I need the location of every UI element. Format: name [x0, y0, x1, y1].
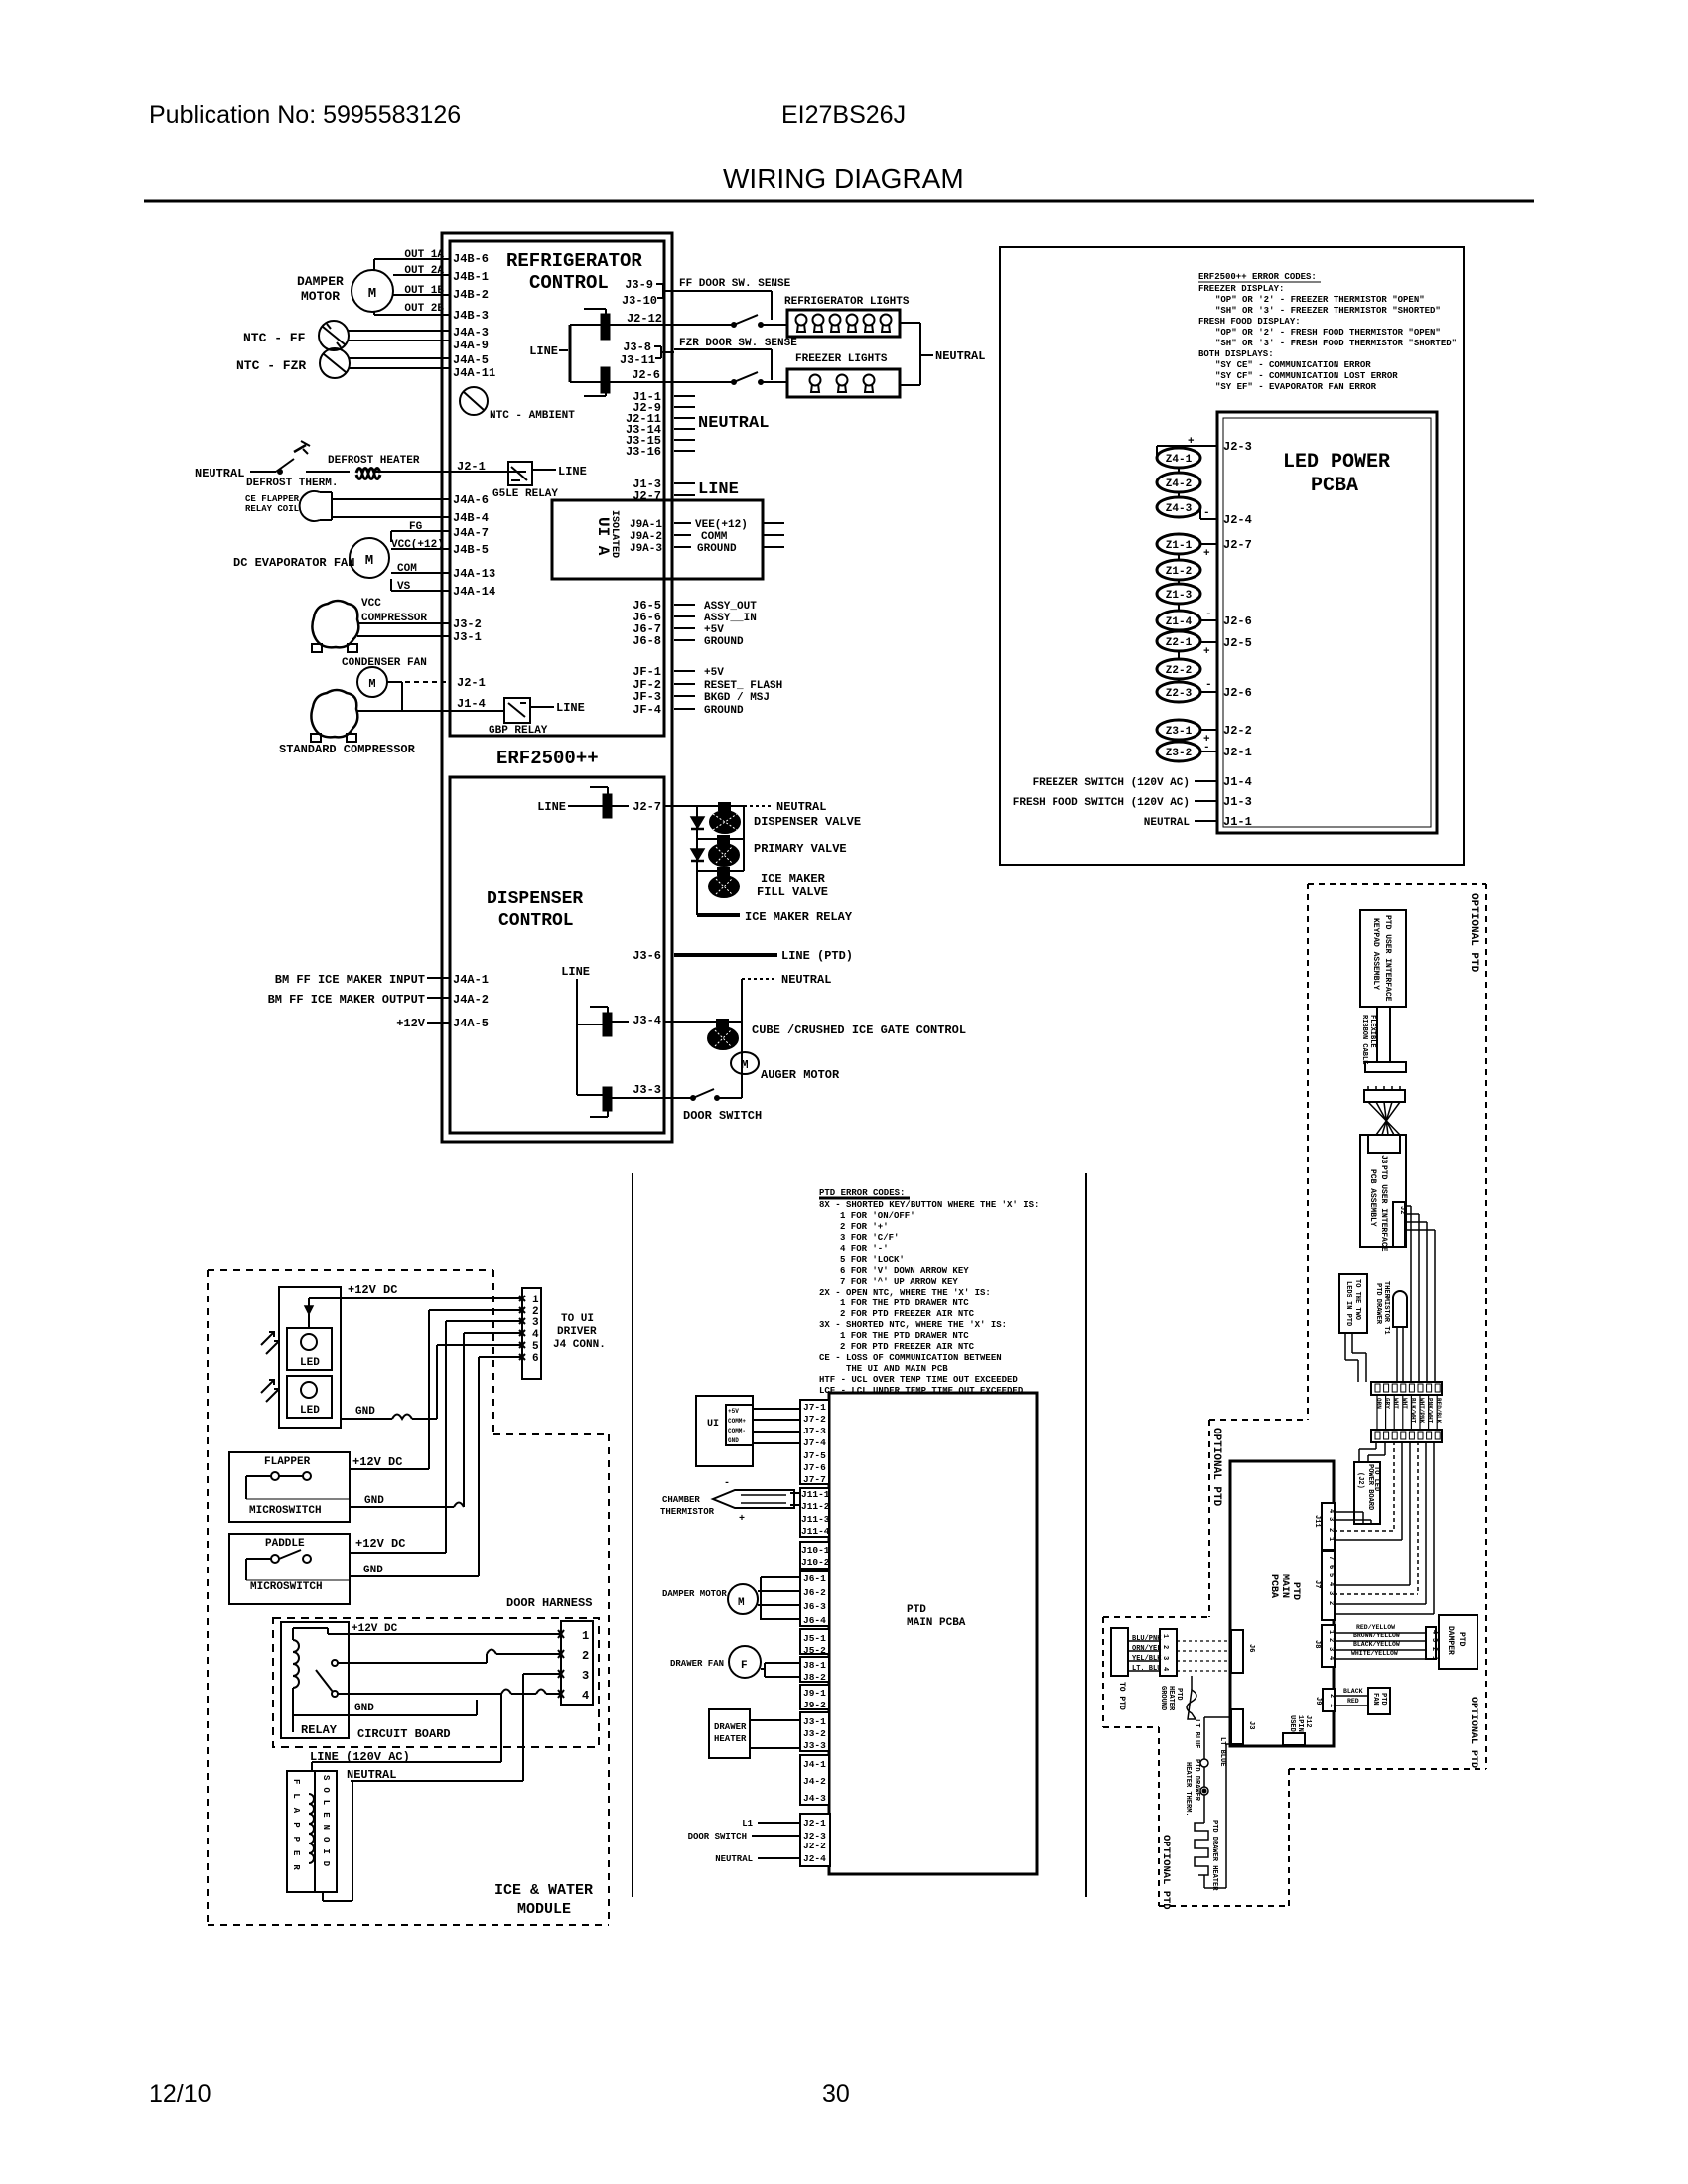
svg-text:J2-6: J2-6: [1223, 686, 1252, 700]
svg-text:DISPENSER: DISPENSER: [487, 889, 583, 909]
svg-text:LED: LED: [300, 1405, 320, 1417]
svg-text:M: M: [738, 1597, 745, 1609]
svg-text:30: 30: [822, 2080, 850, 2108]
svg-text:PCB ASSEMBLY: PCB ASSEMBLY: [1368, 1169, 1377, 1227]
svg-text:DOOR SWITCH: DOOR SWITCH: [683, 1109, 762, 1123]
svg-text:J2-6: J2-6: [632, 368, 660, 382]
svg-text:J4-3: J4-3: [803, 1793, 826, 1804]
svg-text:-: -: [1203, 507, 1210, 519]
svg-text:CHAMBER: CHAMBER: [662, 1495, 700, 1505]
svg-text:PTD DRAWER: PTD DRAWER: [1193, 1759, 1200, 1802]
svg-text:4: 4: [1161, 1667, 1169, 1671]
svg-text:MAIN: MAIN: [1279, 1574, 1290, 1598]
svg-text:VCC: VCC: [361, 598, 381, 610]
svg-text:FREEZER SWITCH (120V AC): FREEZER SWITCH (120V AC): [1033, 777, 1190, 789]
svg-text:GROUND: GROUND: [704, 636, 744, 648]
svg-text:HEATER THERM.: HEATER THERM.: [1184, 1762, 1192, 1817]
svg-text:RELAY COIL: RELAY COIL: [245, 504, 299, 514]
svg-text:4: 4: [1327, 1582, 1335, 1586]
svg-text:JF-4: JF-4: [633, 703, 661, 717]
svg-text:J7: J7: [1313, 1580, 1321, 1588]
svg-text:+12V DC: +12V DC: [348, 1283, 397, 1297]
svg-text:Z2-3: Z2-3: [1166, 688, 1193, 700]
svg-text:DEFROST THERM.: DEFROST THERM.: [246, 478, 338, 489]
svg-text:J4 CONN.: J4 CONN.: [553, 1339, 606, 1351]
svg-text:J2-4: J2-4: [1223, 513, 1252, 527]
svg-text:CONTROL: CONTROL: [498, 911, 574, 931]
svg-text:+: +: [1203, 646, 1210, 658]
svg-text:"SH" OR '3' - FREEZER THERMIST: "SH" OR '3' - FREEZER THERMISTOR "SHORTE…: [1215, 306, 1441, 316]
svg-text:Z4-1: Z4-1: [1166, 454, 1193, 466]
svg-text:J8: J8: [1313, 1640, 1321, 1648]
svg-text:J2-1: J2-1: [803, 1818, 826, 1829]
svg-text:J3-2: J3-2: [803, 1728, 826, 1739]
svg-text:J3-4: J3-4: [633, 1014, 661, 1027]
svg-text:J2-12: J2-12: [627, 312, 662, 326]
svg-text:12/10: 12/10: [149, 2080, 211, 2108]
svg-text:5: 5: [1327, 1573, 1335, 1577]
svg-text:WHITE/YELLOW: WHITE/YELLOW: [1351, 1650, 1398, 1657]
svg-text:COMM+: COMM+: [728, 1418, 746, 1425]
svg-text:J3-11: J3-11: [620, 353, 655, 367]
svg-text:DAMPER: DAMPER: [1446, 1626, 1455, 1655]
svg-text:J4A-5: J4A-5: [453, 1017, 489, 1030]
svg-text:J11-4: J11-4: [801, 1526, 830, 1537]
svg-text:DAMPER: DAMPER: [297, 274, 344, 289]
svg-text:PTD: PTD: [1379, 1693, 1387, 1706]
svg-text:+: +: [1203, 548, 1210, 560]
svg-text:J2-1: J2-1: [457, 460, 486, 474]
svg-text:BLK/WHT: BLK/WHT: [1409, 1398, 1416, 1424]
svg-text:REFRIGERATOR LIGHTS: REFRIGERATOR LIGHTS: [784, 296, 910, 308]
svg-text:VS: VS: [397, 581, 411, 593]
svg-text:3: 3: [582, 1669, 589, 1683]
svg-text:GBP RELAY: GBP RELAY: [489, 725, 548, 737]
svg-text:NEUTRAL: NEUTRAL: [781, 973, 831, 987]
svg-text:J3-16: J3-16: [626, 445, 661, 459]
svg-text:LED POWER: LED POWER: [1283, 451, 1390, 474]
svg-text:4: 4: [1327, 1656, 1335, 1660]
svg-text:LINE: LINE: [561, 965, 590, 979]
svg-text:RED/BLK: RED/BLK: [1435, 1398, 1442, 1424]
svg-text:J11-3: J11-3: [801, 1514, 830, 1525]
svg-text:MOTOR: MOTOR: [301, 289, 340, 304]
svg-text:DRAWER FAN: DRAWER FAN: [670, 1659, 724, 1669]
svg-text:J11-1: J11-1: [801, 1489, 830, 1500]
svg-text:7 FOR '^' UP ARROW KEY: 7 FOR '^' UP ARROW KEY: [840, 1277, 958, 1287]
svg-text:LINE: LINE: [698, 480, 739, 499]
svg-text:NEUTRAL: NEUTRAL: [195, 467, 244, 480]
svg-text:PNK/WHT: PNK/WHT: [1427, 1398, 1434, 1424]
svg-text:PTD DRAWER HEATER: PTD DRAWER HEATER: [1210, 1820, 1218, 1891]
svg-text:GROUND: GROUND: [1159, 1686, 1167, 1710]
svg-text:ICE MAKER: ICE MAKER: [761, 872, 826, 886]
svg-text:7: 7: [1327, 1556, 1335, 1560]
svg-text:WHT: WHT: [1401, 1398, 1408, 1409]
svg-text:ICE & WATER: ICE & WATER: [494, 1882, 593, 1899]
svg-text:F: F: [741, 1660, 748, 1672]
svg-text:J2-6: J2-6: [1223, 614, 1252, 628]
svg-text:USED: USED: [1288, 1715, 1296, 1732]
svg-text:ORN: ORN: [1375, 1398, 1382, 1409]
svg-text:J11: J11: [1313, 1515, 1321, 1528]
svg-text:J9A-3: J9A-3: [630, 543, 662, 555]
svg-text:J3: J3: [1247, 1721, 1255, 1729]
svg-text:J7-6: J7-6: [803, 1462, 826, 1473]
svg-text:CUBE /CRUSHED ICE GATE CONTROL: CUBE /CRUSHED ICE GATE CONTROL: [752, 1024, 966, 1037]
svg-text:Z1-3: Z1-3: [1166, 590, 1193, 602]
svg-text:DOOR SWITCH: DOOR SWITCH: [688, 1832, 747, 1842]
svg-text:J3-1: J3-1: [803, 1716, 826, 1727]
svg-text:"SY CF" - COMMUNICATION LOST E: "SY CF" - COMMUNICATION LOST ERROR: [1215, 371, 1398, 381]
svg-text:THERMISTOR T1: THERMISTOR T1: [1382, 1281, 1390, 1335]
svg-text:J4A-11: J4A-11: [453, 366, 495, 380]
svg-text:Z2-1: Z2-1: [1166, 637, 1193, 649]
svg-text:J6-3: J6-3: [803, 1601, 826, 1612]
svg-text:2: 2: [582, 1649, 589, 1663]
svg-text:-: -: [1203, 742, 1210, 753]
svg-text:PTD USER INTERFACE: PTD USER INTERFACE: [1379, 1165, 1388, 1252]
svg-text:RELAY: RELAY: [301, 1723, 338, 1737]
svg-text:GND: GND: [363, 1565, 383, 1576]
svg-text:+12V DC: +12V DC: [355, 1537, 405, 1551]
svg-text:2: 2: [1328, 1694, 1336, 1698]
svg-text:J4-1: J4-1: [803, 1759, 826, 1770]
svg-text:J1-4: J1-4: [1223, 775, 1252, 789]
svg-text:2X - OPEN NTC, WHERE THE 'X' I: 2X - OPEN NTC, WHERE THE 'X' IS:: [819, 1288, 991, 1297]
svg-text:RIBBON CABLE: RIBBON CABLE: [1360, 1015, 1368, 1064]
svg-text:1PIN: 1PIN: [1296, 1715, 1304, 1732]
svg-text:PTD: PTD: [907, 1604, 926, 1616]
svg-text:3: 3: [1161, 1656, 1169, 1660]
svg-text:+12V DC: +12V DC: [352, 1455, 402, 1469]
svg-text:OPTIONAL PTD: OPTIONAL PTD: [1210, 1428, 1222, 1507]
svg-text:J4A-6: J4A-6: [453, 493, 489, 507]
svg-text:1: 1: [1327, 1537, 1335, 1541]
svg-text:2: 2: [1327, 1601, 1335, 1605]
svg-text:BM FF ICE MAKER OUTPUT: BM FF ICE MAKER OUTPUT: [268, 993, 425, 1007]
svg-text:"SY CE" - COMMUNICATION ERROR: "SY CE" - COMMUNICATION ERROR: [1215, 360, 1371, 370]
svg-text:ERF2500++ ERROR CODES:: ERF2500++ ERROR CODES:: [1198, 272, 1317, 282]
svg-text:+5V: +5V: [704, 667, 724, 679]
svg-text:3: 3: [1327, 1591, 1335, 1595]
svg-text:LINE: LINE: [537, 800, 566, 814]
svg-text:J4A-13: J4A-13: [453, 567, 495, 581]
svg-text:COMM: COMM: [701, 531, 728, 543]
svg-text:NEUTRAL: NEUTRAL: [698, 414, 769, 433]
svg-text:ERF2500++: ERF2500++: [496, 748, 599, 769]
svg-text:3X - SHORTED NTC, WHERE THE 'X: 3X - SHORTED NTC, WHERE THE 'X' IS:: [819, 1320, 1007, 1330]
svg-text:6: 6: [1327, 1565, 1335, 1569]
svg-text:J7-5: J7-5: [803, 1450, 826, 1461]
svg-text:8X - SHORTED KEY/BUTTON WHERE: 8X - SHORTED KEY/BUTTON WHERE THE 'X' IS…: [819, 1200, 1039, 1210]
svg-text:J9: J9: [1314, 1697, 1322, 1705]
svg-text:OPTIONAL PTD: OPTIONAL PTD: [1160, 1835, 1172, 1910]
svg-text:OPTIONAL PTD: OPTIONAL PTD: [1468, 1697, 1478, 1768]
svg-text:J4A-3: J4A-3: [453, 326, 489, 340]
svg-text:PTD: PTD: [1175, 1688, 1183, 1701]
svg-text:J7-2: J7-2: [803, 1414, 826, 1425]
svg-text:J2-7: J2-7: [633, 800, 661, 814]
svg-text:STANDARD COMPRESSOR: STANDARD COMPRESSOR: [279, 743, 416, 756]
svg-text:TO UI: TO UI: [561, 1313, 594, 1325]
svg-text:"OP" OR '2' - FREEZER THERMIST: "OP" OR '2' - FREEZER THERMISTOR "OPEN": [1215, 295, 1425, 305]
svg-text:J3: J3: [1379, 1155, 1388, 1164]
svg-text:J3-10: J3-10: [622, 294, 657, 308]
svg-text:6: 6: [532, 1353, 539, 1365]
svg-text:NEUTRAL: NEUTRAL: [935, 349, 985, 363]
svg-text:J7-7: J7-7: [803, 1474, 826, 1485]
svg-text:J7-3: J7-3: [803, 1426, 826, 1436]
svg-text:Z4-2: Z4-2: [1166, 478, 1192, 490]
svg-text:OUT 2A: OUT 2A: [404, 265, 444, 277]
svg-text:FRESH FOOD SWITCH (120V AC): FRESH FOOD SWITCH (120V AC): [1013, 797, 1190, 809]
svg-text:GROUND: GROUND: [697, 543, 737, 555]
svg-text:J4B-4: J4B-4: [453, 511, 489, 525]
svg-text:J3-3: J3-3: [803, 1740, 826, 1751]
svg-text:J4B-2: J4B-2: [453, 288, 489, 302]
svg-text:CE - LOSS OF COMMUNICATION BET: CE - LOSS OF COMMUNICATION BETWEEN: [819, 1353, 1002, 1363]
svg-text:"SY EF" - EVAPORATOR FAN ERROR: "SY EF" - EVAPORATOR FAN ERROR: [1215, 382, 1377, 392]
svg-text:NEUTRAL: NEUTRAL: [776, 800, 826, 814]
svg-text:J8-2: J8-2: [803, 1672, 826, 1683]
svg-text:J4A-1: J4A-1: [453, 973, 489, 987]
svg-text:M: M: [368, 286, 376, 302]
svg-text:-: -: [1205, 679, 1212, 691]
svg-text:FLAPPER: FLAPPER: [264, 1456, 311, 1468]
svg-text:J3-6: J3-6: [633, 949, 661, 963]
svg-text:PTD USER INTERFACE: PTD USER INTERFACE: [1383, 915, 1392, 1002]
svg-text:THERMISTOR: THERMISTOR: [660, 1507, 715, 1517]
svg-text:J3-3: J3-3: [633, 1083, 661, 1097]
svg-text:FG: FG: [409, 521, 423, 533]
svg-text:M: M: [741, 1058, 748, 1072]
svg-text:3: 3: [532, 1317, 539, 1329]
svg-text:Z2-2: Z2-2: [1166, 665, 1192, 677]
svg-text:ORN/YEL: ORN/YEL: [1132, 1645, 1161, 1653]
svg-text:BLACK/YELLOW: BLACK/YELLOW: [1353, 1641, 1400, 1648]
svg-text:J10-2: J10-2: [801, 1557, 830, 1568]
svg-text:J10-1: J10-1: [801, 1545, 830, 1556]
svg-text:PCBA: PCBA: [1268, 1574, 1279, 1598]
svg-text:J2-1: J2-1: [457, 676, 486, 690]
svg-text:J4A-14: J4A-14: [453, 585, 495, 599]
svg-text:FLAPPER: FLAPPER: [291, 1779, 301, 1879]
svg-text:GND: GND: [364, 1495, 384, 1507]
svg-text:J7-1: J7-1: [803, 1402, 826, 1413]
svg-text:J2-3: J2-3: [1223, 440, 1252, 454]
svg-text:J4A-5: J4A-5: [453, 353, 489, 367]
svg-text:1 FOR THE PTD DRAWER NTC: 1 FOR THE PTD DRAWER NTC: [840, 1331, 969, 1341]
svg-text:J8-1: J8-1: [803, 1660, 826, 1671]
svg-text:JF-1: JF-1: [633, 665, 661, 679]
svg-text:J3-1: J3-1: [453, 630, 482, 644]
svg-text:4: 4: [582, 1689, 589, 1703]
svg-text:PTD: PTD: [1457, 1632, 1466, 1647]
svg-text:WIRING DIAGRAM: WIRING DIAGRAM: [723, 163, 964, 194]
svg-text:1 FOR 'ON/OFF': 1 FOR 'ON/OFF': [840, 1211, 915, 1221]
svg-text:5: 5: [532, 1341, 539, 1353]
svg-text:FREEZER LIGHTS: FREEZER LIGHTS: [795, 353, 888, 365]
svg-text:NTC - FF: NTC - FF: [243, 331, 306, 345]
svg-text:"SH" OR '3' - FRESH FOOD THERM: "SH" OR '3' - FRESH FOOD THERMISTOR "SHO…: [1215, 339, 1457, 348]
svg-text:JF-3: JF-3: [633, 690, 661, 704]
svg-text:J9-1: J9-1: [803, 1688, 826, 1699]
svg-text:BLU/PNK: BLU/PNK: [1132, 1635, 1162, 1643]
svg-text:LINE: LINE: [558, 465, 587, 478]
svg-text:EI27BS26J: EI27BS26J: [781, 101, 906, 129]
svg-text:2 FOR '+': 2 FOR '+': [840, 1222, 889, 1232]
svg-text:Z3-2: Z3-2: [1166, 748, 1192, 759]
svg-text:3: 3: [1327, 1517, 1335, 1521]
svg-text:1: 1: [1327, 1630, 1335, 1634]
svg-text:COMM-: COMM-: [728, 1428, 746, 1434]
svg-text:J6-1: J6-1: [803, 1573, 826, 1584]
svg-text:FLEXIBLE: FLEXIBLE: [1368, 1015, 1376, 1048]
svg-text:DOOR HARNESS: DOOR HARNESS: [506, 1596, 592, 1610]
svg-text:2 FOR PTD FREEZER AIR NTC: 2 FOR PTD FREEZER AIR NTC: [840, 1309, 975, 1319]
svg-text:HEATER: HEATER: [714, 1734, 747, 1744]
svg-text:FILL VALVE: FILL VALVE: [757, 886, 828, 899]
svg-text:BLACK: BLACK: [1343, 1688, 1363, 1695]
svg-text:MICROSWITCH: MICROSWITCH: [250, 1581, 323, 1593]
svg-text:NTC - AMBIENT: NTC - AMBIENT: [490, 410, 575, 422]
svg-text:LINE (PTD): LINE (PTD): [781, 949, 853, 963]
svg-text:VEE(+12): VEE(+12): [695, 519, 748, 531]
svg-text:ISOLATED: ISOLATED: [609, 510, 620, 558]
svg-text:RED/YELLOW: RED/YELLOW: [1356, 1624, 1395, 1631]
svg-text:DAMPER MOTOR: DAMPER MOTOR: [662, 1589, 727, 1599]
svg-text:J3-2: J3-2: [453, 617, 482, 631]
svg-text:KEYPAD ASSEMBLY: KEYPAD ASSEMBLY: [1371, 918, 1380, 990]
svg-text:J4B-3: J4B-3: [453, 309, 489, 323]
svg-text:YEL/BLK: YEL/BLK: [1132, 1655, 1162, 1663]
svg-text:OUT 1B: OUT 1B: [404, 285, 444, 297]
svg-text:CONTROL: CONTROL: [529, 272, 609, 294]
svg-text:LINE: LINE: [556, 701, 585, 715]
svg-text:OUT 2B: OUT 2B: [404, 303, 444, 315]
svg-text:OPTIONAL PTD: OPTIONAL PTD: [1468, 893, 1479, 973]
svg-text:TO THE TWO: TO THE TWO: [1353, 1279, 1361, 1320]
svg-text:J9A-2: J9A-2: [630, 531, 662, 543]
svg-text:4 FOR '-': 4 FOR '-': [840, 1244, 889, 1254]
svg-text:AUGER MOTOR: AUGER MOTOR: [761, 1068, 840, 1082]
svg-text:LINE: LINE: [529, 344, 558, 358]
svg-text:3 FOR 'C/F': 3 FOR 'C/F': [840, 1233, 899, 1243]
svg-text:WHT: WHT: [1392, 1398, 1399, 1409]
svg-text:PCBA: PCBA: [1311, 475, 1358, 497]
svg-text:THE UI AND MAIN PCB: THE UI AND MAIN PCB: [846, 1364, 948, 1374]
svg-text:GND: GND: [354, 1703, 374, 1714]
svg-text:J4A-7: J4A-7: [453, 526, 489, 540]
svg-text:CONDENSER FAN: CONDENSER FAN: [342, 657, 427, 669]
svg-text:1: 1: [582, 1629, 589, 1643]
svg-text:J6-4: J6-4: [803, 1615, 826, 1626]
svg-text:3: 3: [1430, 1638, 1438, 1642]
svg-text:1: 1: [1328, 1704, 1336, 1707]
svg-text:4: 4: [1430, 1630, 1438, 1634]
svg-text:(J2): (J2): [1356, 1472, 1364, 1489]
svg-text:LT. BLU: LT. BLU: [1132, 1665, 1161, 1673]
svg-text:2: 2: [1327, 1528, 1335, 1532]
svg-text:DEFROST HEATER: DEFROST HEATER: [328, 455, 420, 467]
svg-text:J5-1: J5-1: [803, 1633, 826, 1644]
svg-text:1: 1: [532, 1295, 539, 1306]
svg-text:OUT 1A: OUT 1A: [404, 249, 444, 261]
svg-text:GRY: GRY: [1384, 1398, 1391, 1409]
svg-text:LT BLUE: LT BLUE: [1193, 1719, 1200, 1748]
svg-text:CIRCUIT BOARD: CIRCUIT BOARD: [357, 1727, 451, 1741]
svg-text:4: 4: [532, 1329, 539, 1341]
svg-text:GROUND: GROUND: [704, 705, 744, 717]
svg-text:J1-3: J1-3: [1223, 795, 1252, 809]
svg-text:CE FLAPPER: CE FLAPPER: [245, 494, 300, 504]
svg-text:LEDS IN PTD: LEDS IN PTD: [1344, 1281, 1352, 1326]
svg-text:ICE MAKER RELAY: ICE MAKER RELAY: [745, 910, 853, 924]
svg-text:POWER BOARD: POWER BOARD: [1366, 1464, 1374, 1510]
svg-text:J2-2: J2-2: [803, 1841, 826, 1851]
svg-text:COM: COM: [397, 563, 417, 575]
svg-text:1: 1: [1430, 1656, 1438, 1660]
svg-text:M: M: [365, 553, 373, 569]
svg-text:J6-2: J6-2: [803, 1587, 826, 1598]
svg-text:J4B-6: J4B-6: [453, 252, 489, 266]
svg-text:Publication No: 5995583126: Publication No: 5995583126: [149, 101, 461, 129]
svg-text:J9A-1: J9A-1: [630, 519, 662, 531]
svg-text:MICROSWITCH: MICROSWITCH: [249, 1505, 322, 1517]
svg-text:-: -: [1205, 609, 1212, 620]
svg-text:DISPENSER VALVE: DISPENSER VALVE: [754, 815, 861, 829]
svg-text:DC EVAPORATOR FAN: DC EVAPORATOR FAN: [233, 556, 354, 570]
svg-text:LT BLUE: LT BLUE: [1218, 1737, 1226, 1766]
svg-text:M: M: [368, 677, 375, 691]
svg-text:J6-8: J6-8: [633, 634, 661, 648]
svg-text:J5-2: J5-2: [803, 1645, 826, 1656]
svg-text:J4A-2: J4A-2: [453, 993, 489, 1007]
svg-text:NEUTRAL: NEUTRAL: [347, 1768, 396, 1782]
svg-text:BOTH DISPLAYS:: BOTH DISPLAYS:: [1198, 349, 1274, 359]
svg-text:MODULE: MODULE: [517, 1901, 571, 1918]
svg-text:J11-2: J11-2: [801, 1501, 830, 1512]
svg-text:Z1-4: Z1-4: [1166, 616, 1193, 628]
svg-text:J12: J12: [1304, 1715, 1312, 1728]
svg-text:FZR DOOR SW. SENSE: FZR DOOR SW. SENSE: [679, 338, 797, 349]
svg-text:FAN: FAN: [1371, 1693, 1379, 1706]
svg-text:FREEZER DISPLAY:: FREEZER DISPLAY:: [1198, 284, 1284, 294]
svg-text:6 FOR 'V' DOWN ARROW KEY: 6 FOR 'V' DOWN ARROW KEY: [840, 1266, 969, 1276]
svg-text:J4A-9: J4A-9: [453, 339, 489, 352]
svg-text:2: 2: [1430, 1647, 1438, 1651]
svg-text:WHT/PNK: WHT/PNK: [1418, 1398, 1425, 1424]
svg-text:J2-1: J2-1: [1223, 746, 1252, 759]
svg-text:G5LE RELAY: G5LE RELAY: [492, 488, 558, 500]
svg-text:UI: UI: [707, 1419, 719, 1430]
svg-text:RED: RED: [1347, 1698, 1359, 1705]
svg-text:NEUTRAL: NEUTRAL: [715, 1854, 753, 1864]
svg-text:Z4-3: Z4-3: [1166, 503, 1193, 515]
svg-text:NEUTRAL: NEUTRAL: [1144, 817, 1191, 829]
svg-text:SOLENOID: SOLENOID: [321, 1775, 331, 1873]
svg-text:1: 1: [1161, 1634, 1169, 1638]
svg-text:J4B-1: J4B-1: [453, 270, 489, 284]
svg-text:J2-7: J2-7: [1223, 538, 1252, 552]
svg-text:LED: LED: [300, 1357, 320, 1369]
svg-text:GND: GND: [728, 1437, 739, 1444]
svg-text:PTD DRAWER: PTD DRAWER: [1374, 1283, 1382, 1325]
svg-text:J1-1: J1-1: [1223, 815, 1252, 829]
svg-text:3: 3: [1327, 1647, 1335, 1651]
svg-text:HEATER: HEATER: [1167, 1686, 1175, 1711]
